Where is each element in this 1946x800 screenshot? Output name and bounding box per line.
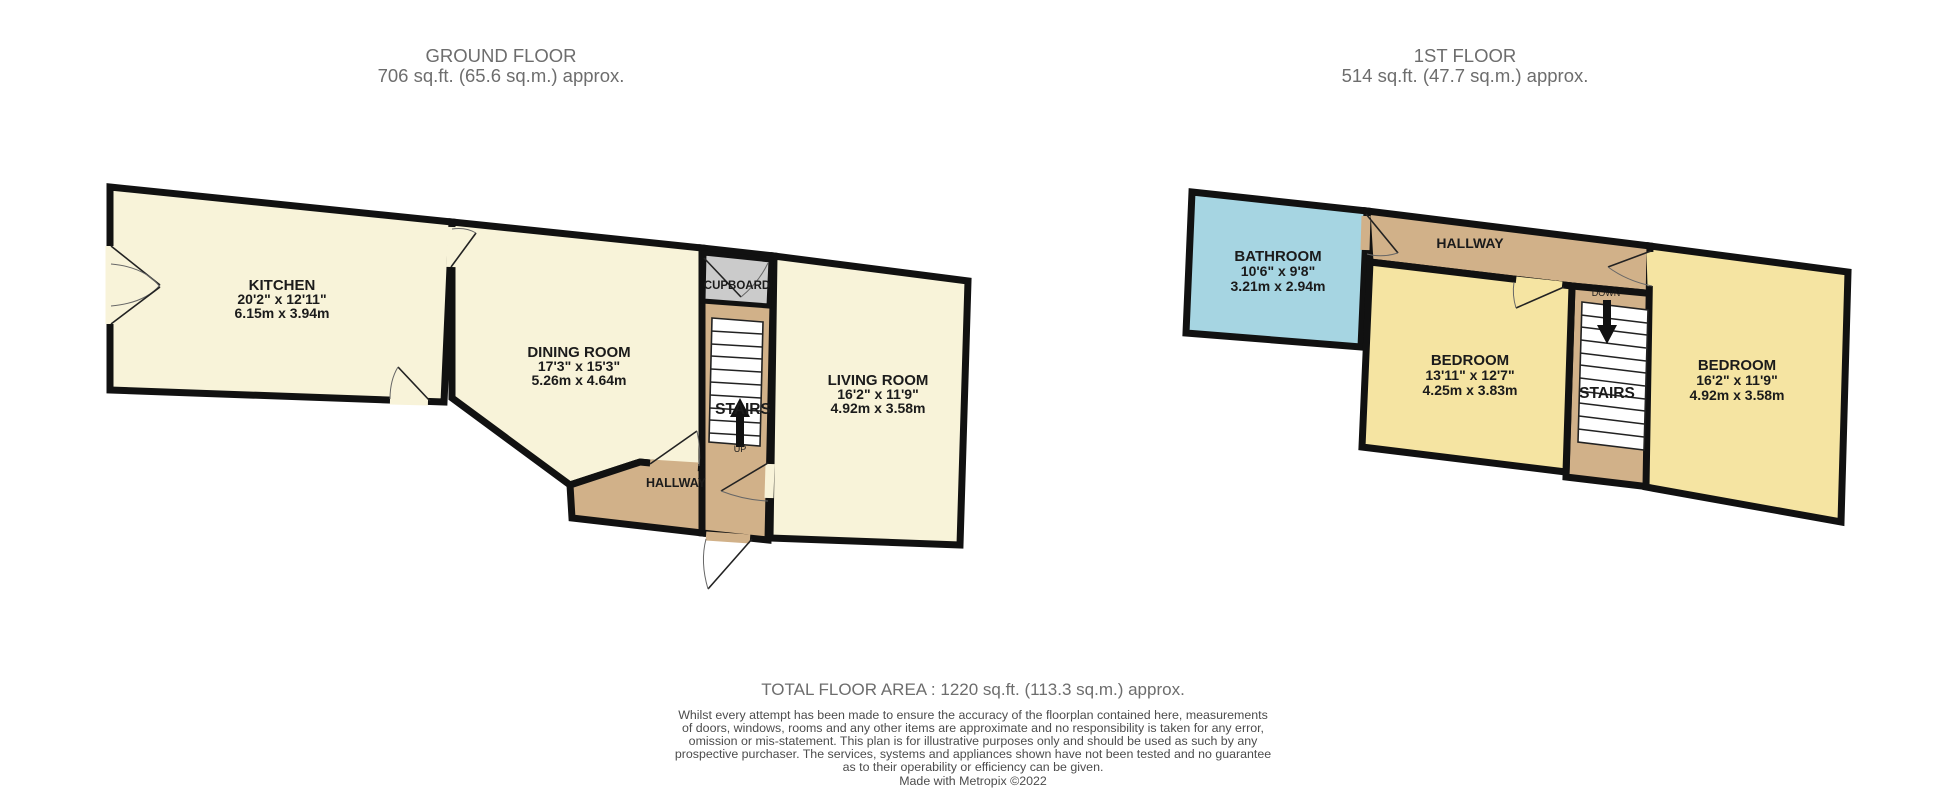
living-room-dims-metric: 4.92m x 3.58m (831, 400, 926, 416)
bedroom-left-dims-metric: 4.25m x 3.83m (1423, 382, 1518, 398)
stairs-first (1578, 300, 1648, 450)
disclaimer-line: as to their operability or efficiency ca… (0, 761, 1946, 774)
bedroom-left-door-opening (1516, 281, 1562, 286)
bathroom-door-opening (1365, 216, 1366, 250)
stairs-first-label: STAIRS (1579, 385, 1635, 402)
front-door-swing (703, 539, 708, 589)
stairs-down-label: DOWN (1592, 288, 1621, 298)
kitchen-dining-door-opening (451, 227, 452, 267)
footer: TOTAL FLOOR AREA : 1220 sq.ft. (113.3 sq… (0, 680, 1946, 788)
hallway-first-label: HALLWAY (1436, 235, 1504, 251)
stairs-ground-label: STAIRS (715, 401, 771, 418)
kitchen-rear-door-opening (390, 400, 428, 401)
disclaimer: Whilst every attempt has been made to en… (0, 709, 1946, 774)
dining-room-dims-metric: 5.26m x 4.64m (532, 372, 627, 388)
stairs-ground (709, 318, 763, 447)
stairs-up-label: UP (734, 444, 747, 454)
dining-hallway-door-opening (650, 464, 698, 467)
floorplan-page: GROUND FLOOR 706 sq.ft. (65.6 sq.m.) app… (0, 0, 1946, 800)
bedroom-left-dims-imperial: 13'11" x 12'7" (1425, 367, 1514, 383)
stairs-treads-first (1578, 302, 1648, 450)
hallway-living-door-opening (769, 464, 770, 498)
total-floor-area: TOTAL FLOOR AREA : 1220 sq.ft. (113.3 sq… (0, 680, 1946, 700)
metropix-credit: Made with Metropix ©2022 (0, 775, 1946, 788)
front-door-opening (706, 536, 750, 539)
front-door-leaf (708, 539, 752, 589)
cupboard-label: CUPBOARD (704, 280, 770, 292)
bathroom-dims-metric: 3.21m x 2.94m (1231, 278, 1326, 294)
bedroom-right-dims-imperial: 16'2" x 11'9" (1696, 372, 1777, 388)
kitchen-dims-metric: 6.15m x 3.94m (235, 305, 330, 321)
bedroom-right-door-opening (1651, 252, 1652, 286)
hallway-ground-label: HALLWAY (646, 476, 707, 490)
bathroom-dims-imperial: 10'6" x 9'8" (1241, 263, 1315, 279)
bedroom-right-dims-metric: 4.92m x 3.58m (1690, 387, 1785, 403)
